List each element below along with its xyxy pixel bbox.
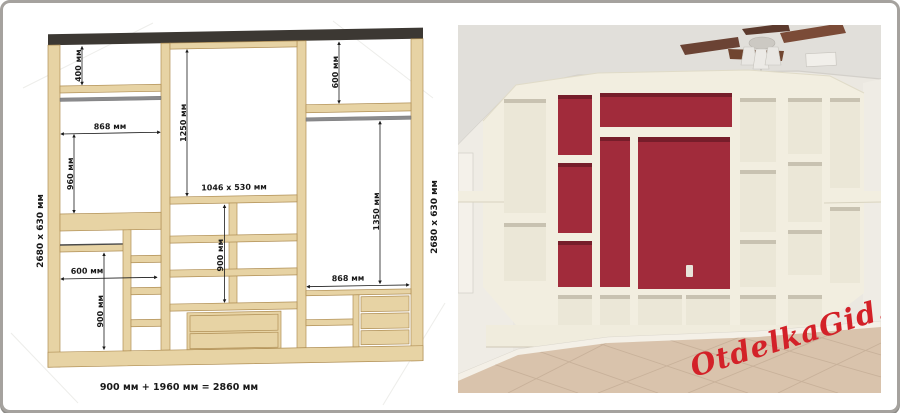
ceiling-vent: [806, 52, 837, 67]
dimension-label-600-left: 600 мм: [71, 266, 104, 276]
red-niches: [558, 93, 732, 289]
dimension-label-1250: 1250 мм: [179, 104, 188, 142]
dimension-label-900-left: 900 мм: [96, 295, 105, 328]
overall-right-side-label: 2680 x 630 мм: [430, 180, 440, 254]
dimension-label-868-right: 868 мм: [332, 274, 365, 284]
middle-drawers: [187, 311, 281, 350]
cabinet-drawing: 400 мм 868 мм 960 мм 1250 мм 1046 x 530 …: [48, 28, 423, 368]
overall-width-formula-label: 900 мм + 1960 мм = 2860 мм: [100, 382, 258, 393]
dimension-label-868-left: 868 мм: [94, 122, 127, 132]
right-section: [306, 103, 411, 348]
dimension-drawing-panel: 400 мм 868 мм 960 мм 1250 мм 1046 x 530 …: [3, 3, 453, 413]
wardrobe-dimension-diagram: 400 мм 868 мм 960 мм 1250 мм 1046 x 530 …: [3, 3, 453, 413]
middle-section: [170, 41, 297, 350]
dimension-label-900-middle: 900 мм: [216, 239, 225, 272]
wall-unit-photo: OtdelkaGid.ru: [458, 25, 881, 393]
top-red-strip-niche: [600, 93, 732, 127]
overall-left-side-label: 2680 x 630 мм: [36, 194, 46, 268]
dimension-label-1350: 1350 мм: [372, 192, 381, 230]
drywall-wall-unit: [458, 70, 881, 347]
right-side-shelf: [824, 191, 881, 203]
dimension-label-600-right: 600 мм: [331, 56, 340, 89]
right-drawers: [361, 296, 409, 345]
dimension-label-960: 960 мм: [66, 157, 75, 190]
dimension-label-1046x530: 1046 x 530 мм: [201, 182, 267, 192]
dimension-label-400: 400 мм: [74, 49, 83, 82]
outlet: [686, 265, 693, 277]
tv-niche: [638, 137, 730, 289]
photo-panel: OtdelkaGid.ru: [458, 25, 881, 393]
page-frame: 400 мм 868 мм 960 мм 1250 мм 1046 x 530 …: [0, 0, 900, 413]
left-side-shelf: [458, 191, 504, 202]
left-door-frame: [458, 153, 473, 293]
